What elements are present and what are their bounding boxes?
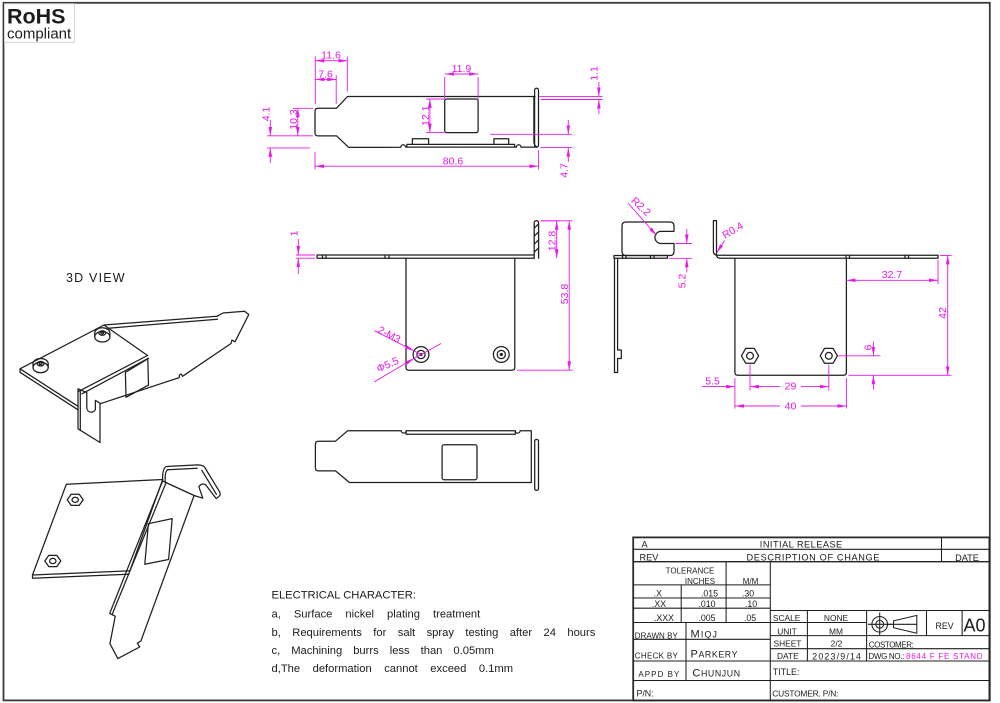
svg-text:PARKERY: PARKERY — [691, 649, 739, 661]
svg-text:.005: .005 — [698, 613, 715, 623]
svg-text:8644 F FE STAND: 8644 F FE STAND — [906, 652, 983, 661]
svg-text:R0.4: R0.4 — [720, 220, 745, 242]
svg-text:11.6: 11.6 — [321, 50, 341, 62]
svg-text:.015: .015 — [701, 589, 718, 599]
svg-text:Φ5.5: Φ5.5 — [375, 355, 401, 375]
svg-text:NONE: NONE — [824, 613, 849, 623]
svg-text:40: 40 — [785, 400, 797, 412]
svg-text:DWG NO.:: DWG NO.: — [868, 652, 904, 661]
svg-text:11.9: 11.9 — [452, 63, 472, 75]
svg-text:5.5: 5.5 — [705, 375, 720, 387]
svg-text:.10: .10 — [745, 599, 757, 609]
svg-text:CUSTOMER. P/N:: CUSTOMER. P/N: — [772, 688, 838, 698]
svg-text:DESCRIPTION OF CHANGE: DESCRIPTION OF CHANGE — [747, 552, 880, 562]
svg-text:CHECK BY: CHECK BY — [635, 651, 679, 660]
svg-text:SCALE: SCALE — [773, 613, 801, 623]
svg-text:TITLE:: TITLE: — [773, 667, 799, 677]
svg-text:5.2: 5.2 — [676, 274, 688, 289]
svg-text:CHUNJUN: CHUNJUN — [692, 668, 740, 680]
svg-text:12.1: 12.1 — [420, 105, 432, 126]
svg-text:A0: A0 — [963, 616, 985, 636]
svg-text:7.6: 7.6 — [318, 69, 333, 81]
svg-text:.XXX: .XXX — [654, 613, 674, 623]
svg-text:d,The deformation cannot excee: d,The deformation cannot exceed 0.1mm — [272, 663, 514, 675]
svg-text:COSTOMER:: COSTOMER: — [869, 641, 914, 650]
svg-text:42: 42 — [937, 307, 949, 319]
svg-text:UNIT: UNIT — [777, 626, 797, 636]
svg-text:2/2: 2/2 — [831, 639, 843, 649]
svg-text:.05: .05 — [744, 613, 756, 623]
svg-text:REV: REV — [640, 552, 660, 562]
svg-text:A: A — [642, 540, 649, 550]
svg-text:MIQJ: MIQJ — [691, 629, 719, 641]
svg-text:10.3: 10.3 — [288, 109, 300, 130]
svg-text:TOLERANCE: TOLERANCE — [666, 566, 715, 575]
svg-text:M/M: M/M — [743, 577, 759, 586]
svg-text:80.6: 80.6 — [443, 155, 464, 167]
svg-text:ELECTRICAL CHARACTER:: ELECTRICAL CHARACTER: — [272, 590, 416, 602]
svg-text:INCHES: INCHES — [685, 577, 715, 586]
svg-text:12.8: 12.8 — [546, 231, 558, 252]
svg-text:2023/9/14: 2023/9/14 — [812, 651, 861, 661]
svg-text:32.7: 32.7 — [882, 269, 903, 281]
svg-text:c, Machining burrs less than 0: c, Machining burrs less than 0.05mm — [272, 645, 494, 657]
svg-text:APPD BY: APPD BY — [638, 670, 680, 679]
svg-text:REV: REV — [936, 621, 954, 631]
svg-text:MM: MM — [829, 626, 843, 636]
svg-text:1.1: 1.1 — [589, 66, 601, 81]
svg-text:3D VIEW: 3D VIEW — [66, 271, 126, 285]
svg-text:6: 6 — [862, 344, 874, 350]
svg-text:.XX: .XX — [652, 599, 666, 609]
svg-text:DATE: DATE — [777, 651, 799, 661]
svg-text:DATE: DATE — [955, 553, 979, 563]
svg-text:P/N:: P/N: — [637, 688, 654, 698]
svg-text:R2.2: R2.2 — [628, 195, 653, 219]
svg-text:.30: .30 — [742, 589, 754, 599]
svg-text:INITIAL RELEASE: INITIAL RELEASE — [760, 540, 842, 550]
svg-text:.X: .X — [654, 589, 662, 599]
svg-text:.010: .010 — [698, 599, 715, 609]
svg-text:1: 1 — [288, 230, 300, 236]
svg-text:compliant: compliant — [7, 26, 72, 43]
svg-text:4.7: 4.7 — [558, 163, 570, 178]
svg-text:4.1: 4.1 — [261, 107, 273, 122]
svg-text:53.8: 53.8 — [559, 284, 571, 305]
svg-text:SHEET: SHEET — [774, 639, 802, 649]
svg-text:29: 29 — [785, 380, 797, 392]
svg-text:b, Requirements for salt spray: b, Requirements for salt spray testing a… — [272, 627, 596, 639]
svg-text:DRAWN BY: DRAWN BY — [635, 631, 679, 640]
svg-text:a, Surface nickel plating trea: a, Surface nickel plating treatment — [272, 608, 482, 620]
